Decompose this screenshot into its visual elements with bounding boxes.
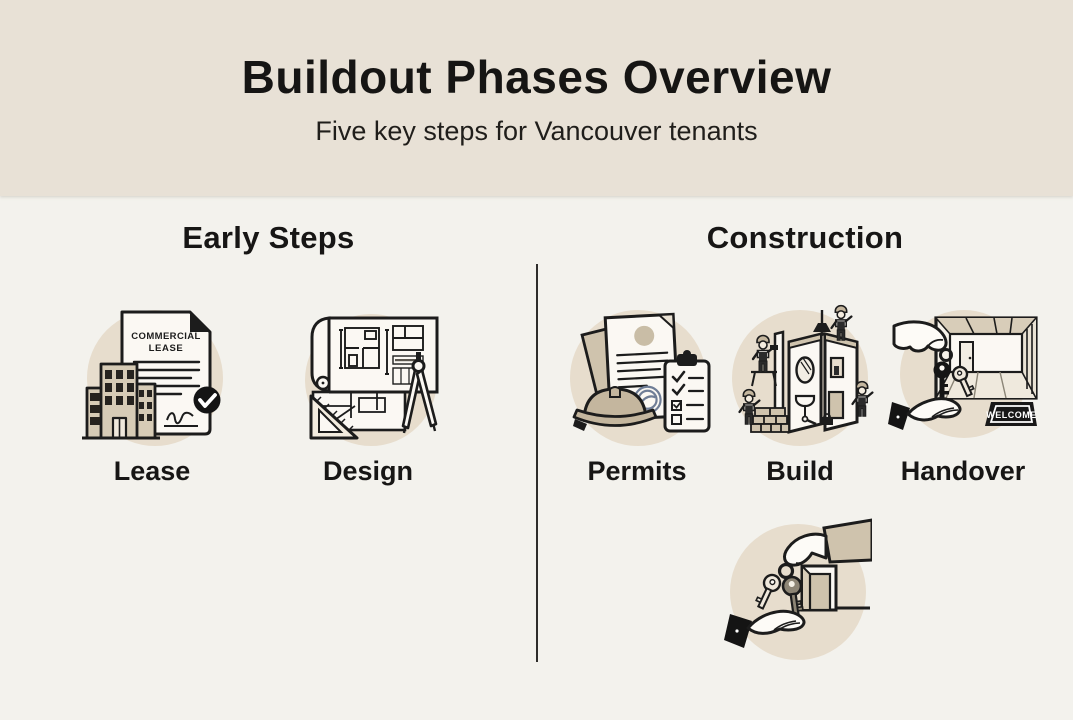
phase-lease: COMMERCIAL LEASE (67, 300, 237, 487)
welcome-mat: WELCOME (985, 402, 1037, 426)
phase-handover: WELCOME (878, 300, 1048, 487)
commercial-lease-document-icon: COMMERCIAL LEASE (77, 300, 227, 450)
phase-label-permits: Permits (552, 456, 722, 487)
header-band: Buildout Phases Overview Five key steps … (0, 0, 1073, 196)
keys-exchange-icon (722, 516, 872, 666)
phase-build: Build (715, 300, 885, 487)
key-handover-icon: WELCOME (888, 300, 1038, 450)
infographic-canvas: Buildout Phases Overview Five key steps … (0, 0, 1073, 720)
phase-label-handover: Handover (878, 456, 1048, 487)
blueprint-design-icon (293, 300, 443, 450)
phase-label-design: Design (283, 456, 453, 487)
phase-label-lease: Lease (67, 456, 237, 487)
section-title-construction: Construction (537, 220, 1073, 256)
permit-documents-icon (562, 300, 712, 450)
page-subtitle: Five key steps for Vancouver tenants (0, 116, 1073, 147)
section-title-early-steps: Early Steps (0, 220, 537, 256)
construction-workers-icon (725, 300, 875, 450)
inspection-checklist (665, 350, 709, 431)
page-title: Buildout Phases Overview (0, 0, 1073, 104)
phase-permits: Permits (552, 300, 722, 487)
check-badge (194, 387, 221, 414)
section-divider-line (536, 264, 538, 662)
phase-design: Design (283, 300, 453, 487)
phase-label-build: Build (715, 456, 885, 487)
keys-exchange-figure (712, 516, 882, 666)
welcome-mat-text: WELCOME (986, 410, 1037, 420)
lease-doc-title-line2: LEASE (149, 343, 184, 354)
brick-stack (751, 408, 789, 432)
lease-doc-title-line1: COMMERCIAL (131, 331, 200, 342)
